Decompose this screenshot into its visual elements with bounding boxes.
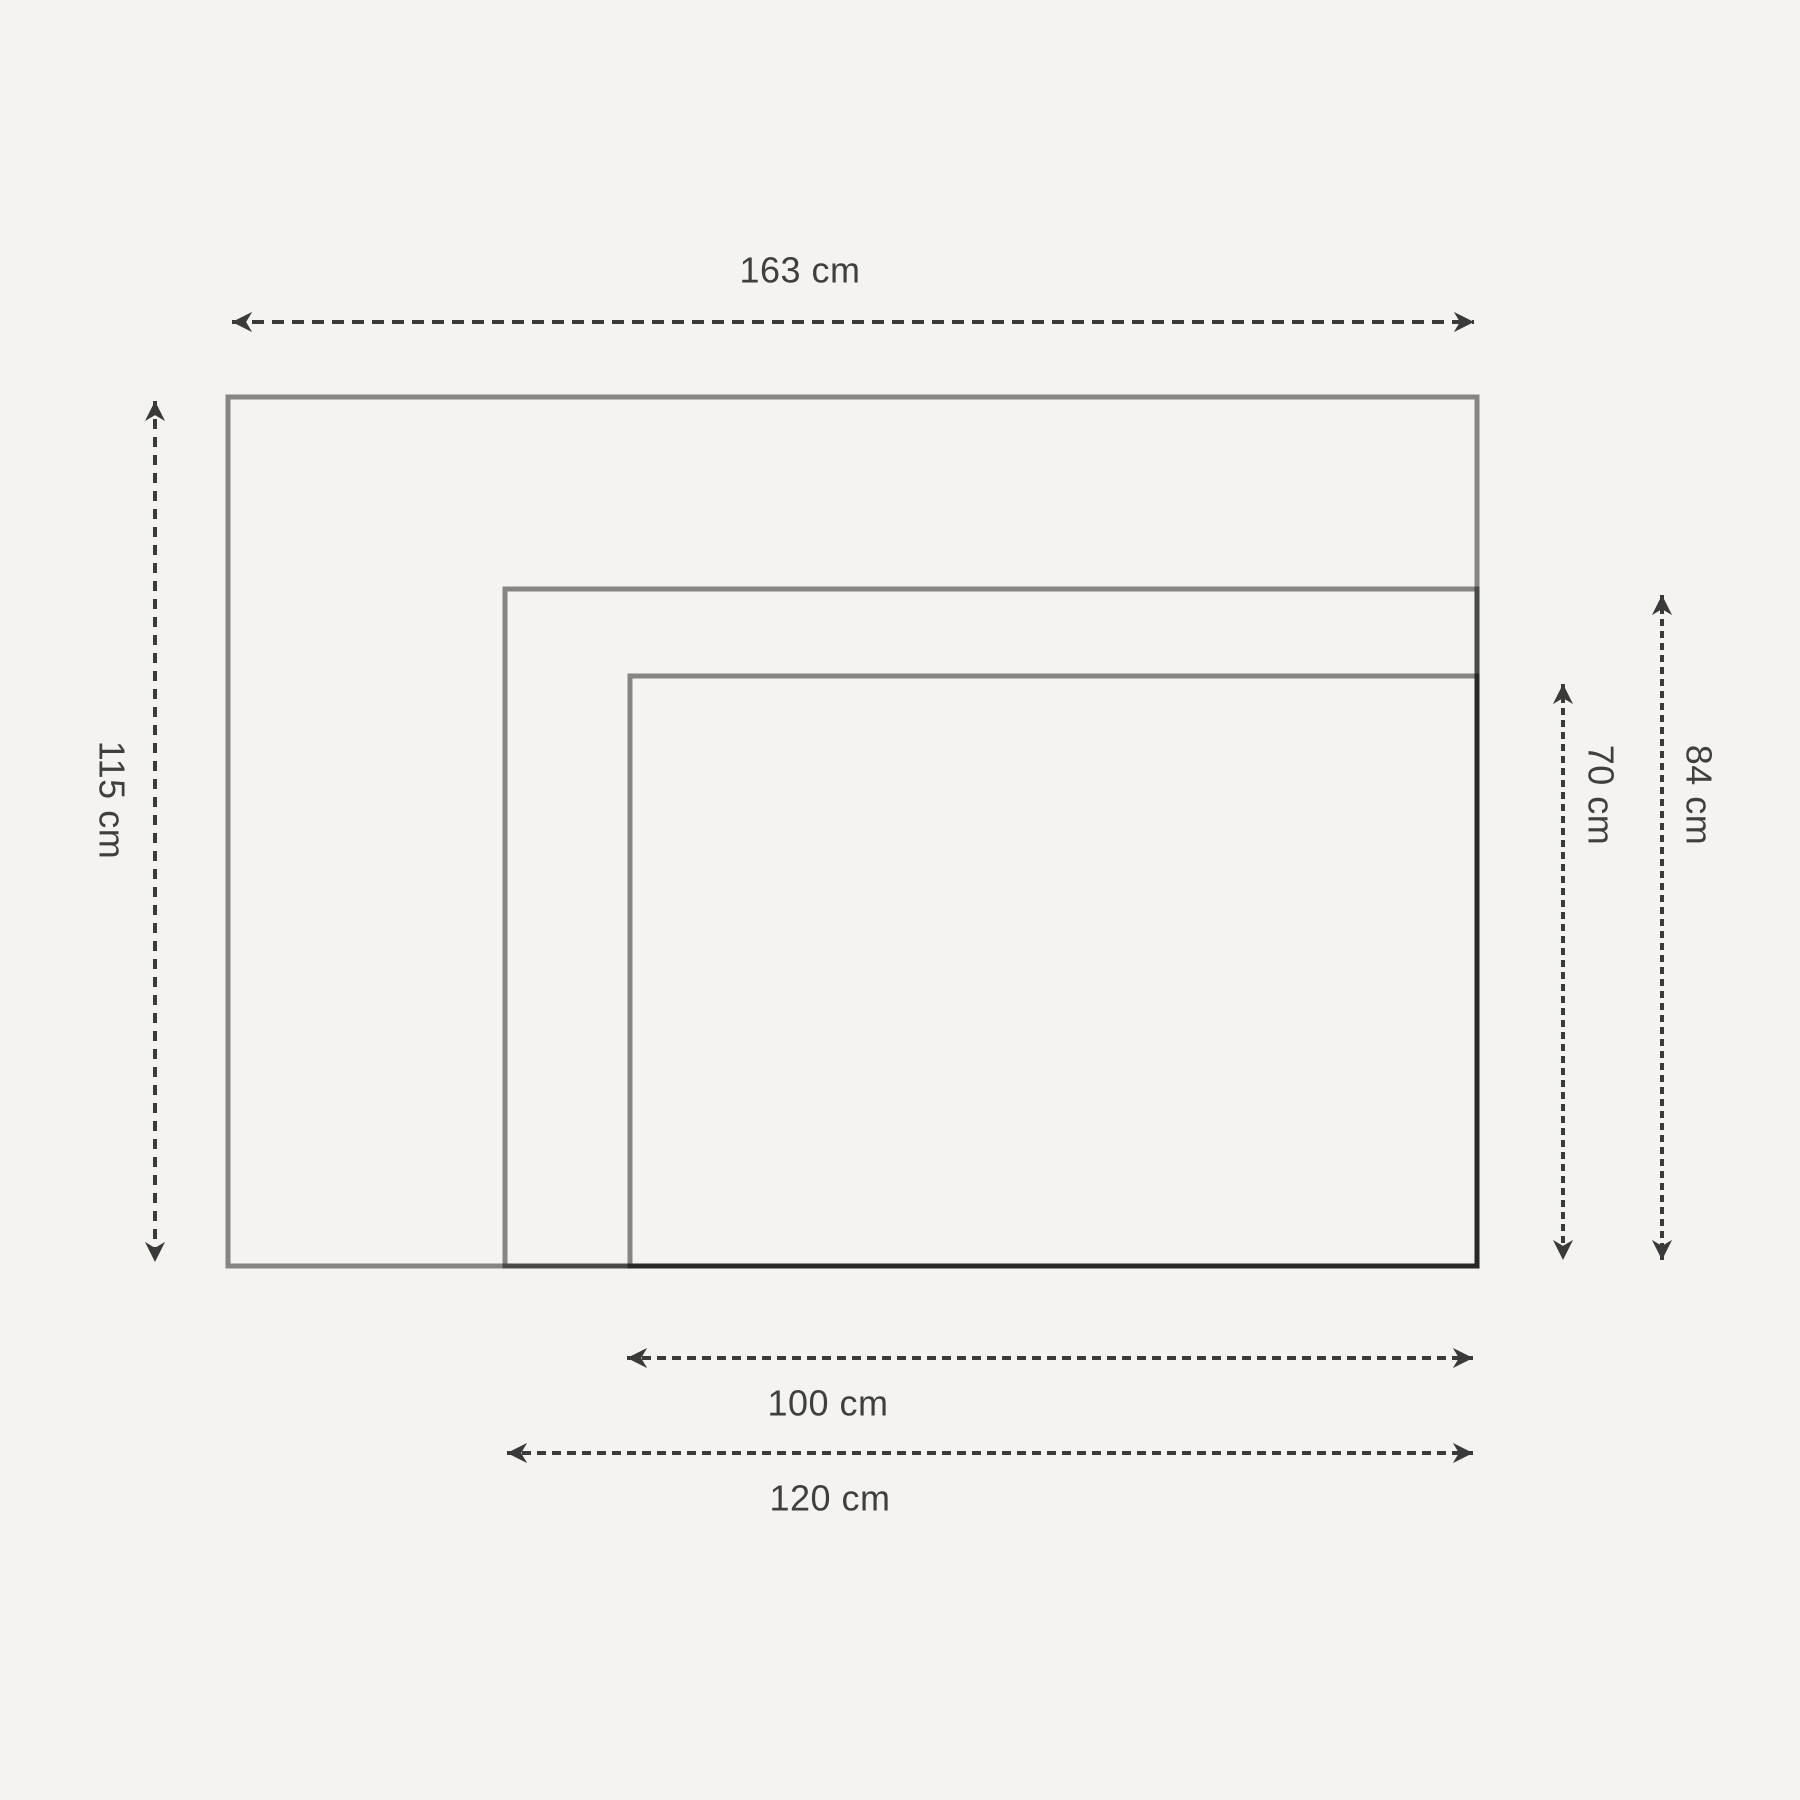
- dimension-width-small: 100 cm: [627, 1358, 1473, 1424]
- dimension-height-small: 70 cm: [1563, 684, 1622, 1260]
- dimension-label-height-small: 70 cm: [1581, 745, 1622, 846]
- dimension-height-medium: 84 cm: [1662, 595, 1720, 1260]
- dimension-label-height-large: 115 cm: [92, 741, 133, 859]
- dimension-width-large: 163 cm: [232, 250, 1474, 323]
- dimension-label-width-small: 100 cm: [767, 1383, 888, 1424]
- dimension-label-height-medium: 84 cm: [1679, 745, 1720, 846]
- dimension-label-width-medium: 120 cm: [769, 1478, 890, 1519]
- rectangle-large: [228, 397, 1477, 1266]
- dimension-diagram: 163 cm 115 cm 70 cm 84 cm 100 cm 120 cm: [0, 0, 1800, 1800]
- rectangle-medium: [505, 589, 1477, 1266]
- dimension-height-large: 115 cm: [92, 401, 156, 1262]
- dimension-label-width-large: 163 cm: [739, 250, 860, 291]
- dimension-width-medium: 120 cm: [507, 1453, 1473, 1519]
- diagram-canvas: 163 cm 115 cm 70 cm 84 cm 100 cm 120 cm: [0, 0, 1800, 1800]
- rectangle-small: [630, 676, 1477, 1266]
